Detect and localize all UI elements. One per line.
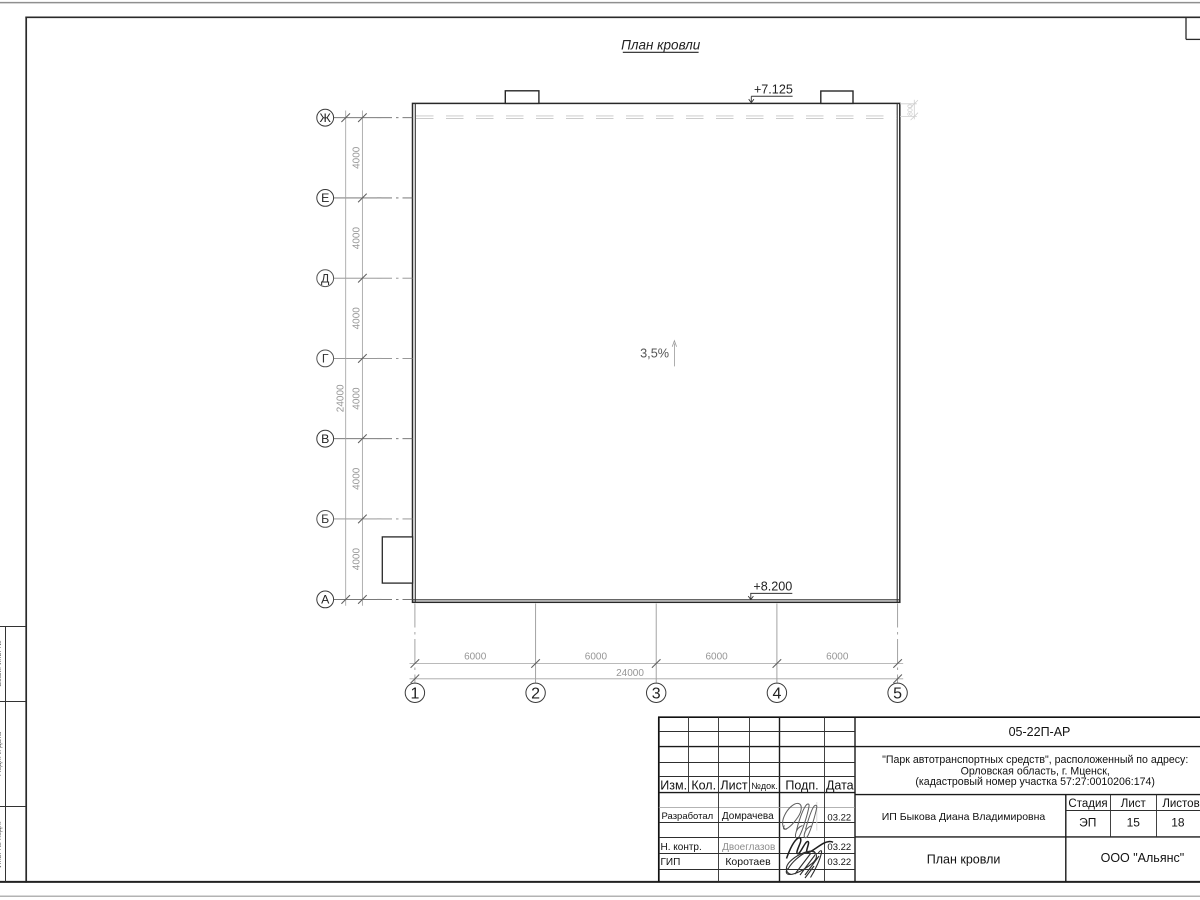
svg-text:3: 3 [652,685,661,702]
svg-text:Н. контр.: Н. контр. [661,842,702,853]
svg-text:Изм.: Изм. [660,779,687,793]
svg-text:Дата: Дата [826,779,854,793]
svg-text:03.22: 03.22 [827,842,851,853]
svg-text:ГИП: ГИП [661,857,681,868]
svg-text:ИП Быкова Диана Владимировна: ИП Быкова Диана Владимировна [882,811,1046,823]
svg-text:Лист: Лист [1121,798,1147,810]
svg-text:3,5%: 3,5% [640,346,669,360]
svg-text:Е: Е [321,191,329,205]
svg-text:Г: Г [322,352,329,366]
svg-text:+7.125: +7.125 [754,82,793,96]
svg-text:03.22: 03.22 [827,812,851,823]
svg-text:5: 5 [893,685,902,702]
svg-text:Стадия: Стадия [1068,798,1107,810]
svg-text:6000: 6000 [826,652,849,663]
svg-text:Ж: Ж [320,111,332,125]
svg-text:Подп. и дата: Подп. и дата [0,731,3,776]
svg-text:План кровли: План кровли [621,38,701,53]
svg-text:А: А [321,593,330,607]
svg-text:ЭП: ЭП [1079,816,1096,830]
svg-text:Б: Б [321,512,329,526]
svg-text:1: 1 [410,685,419,702]
svg-text:4000: 4000 [351,307,362,330]
svg-text:05-22П-АР: 05-22П-АР [1009,725,1071,739]
svg-text:6000: 6000 [585,652,608,663]
svg-text:4000: 4000 [351,548,362,571]
svg-text:6000: 6000 [464,652,487,663]
svg-text:Взам. инв. №: Взам. инв. № [0,640,3,686]
svg-text:Листов: Листов [1162,798,1199,810]
svg-text:Д: Д [321,272,330,286]
svg-text:2: 2 [531,685,540,702]
svg-text:Разработал: Разработал [662,811,714,822]
svg-text:Двоеглазов: Двоеглазов [722,842,775,853]
svg-text:4000: 4000 [351,227,362,250]
svg-text:03.22: 03.22 [827,857,851,868]
svg-text:800: 800 [908,104,915,116]
svg-text:Подп.: Подп. [785,779,818,793]
svg-text:№док.: №док. [751,781,777,791]
svg-text:6000: 6000 [705,652,728,663]
svg-text:Кол.: Кол. [691,779,716,793]
svg-text:ООО "Альянс": ООО "Альянс" [1101,851,1185,865]
svg-text:В: В [321,432,329,446]
svg-text:(кадастровый номер участка 57:: (кадастровый номер участка 57:27:0010206… [915,776,1155,788]
svg-text:4000: 4000 [351,467,362,490]
svg-text:24000: 24000 [335,384,346,412]
svg-text:4000: 4000 [351,146,362,169]
svg-text:+8.200: +8.200 [753,579,792,593]
svg-text:15: 15 [1127,816,1141,830]
svg-text:18: 18 [1171,816,1185,830]
svg-text:"Парк автотранспортных средств: "Парк автотранспортных средств", располо… [882,754,1188,766]
svg-text:Коротаев: Коротаев [725,856,771,868]
svg-text:24000: 24000 [616,668,644,679]
svg-text:4000: 4000 [351,387,362,410]
svg-text:4: 4 [772,685,781,702]
svg-text:План кровли: План кровли [927,853,1001,867]
svg-text:Лист: Лист [720,779,747,793]
svg-text:Инв. № подл.: Инв. № подл. [0,821,3,868]
svg-text:Домрачева: Домрачева [722,811,774,822]
